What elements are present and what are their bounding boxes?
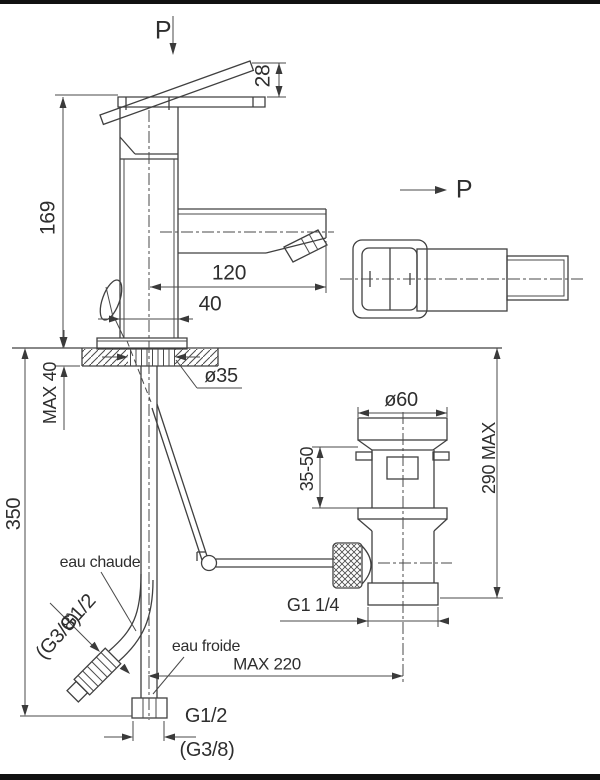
dimension-lines	[20, 63, 503, 741]
thread-cold-g12: G1/2	[185, 706, 227, 726]
label-eau-chaude: eau chaude	[60, 555, 141, 571]
rod-ball-joint	[202, 556, 217, 571]
page-border-top	[0, 0, 600, 4]
side-view-spout	[340, 186, 583, 318]
faucet-top-plate	[118, 97, 265, 107]
dim-dia-60: ø60	[384, 390, 418, 410]
dim-max-40: MAX 40	[41, 362, 59, 424]
view-arrow-side-head	[435, 186, 447, 194]
dim-120: 120	[212, 263, 246, 284]
dim-35-50: 35-50	[298, 447, 316, 492]
thread-drain-g114: G1 1/4	[287, 596, 339, 614]
view-label-p-top: P	[155, 19, 171, 44]
lever-handle	[100, 61, 253, 124]
threaded-shank	[131, 349, 175, 366]
page-border-bottom	[0, 774, 600, 780]
mounting-deck	[12, 348, 502, 366]
thread-cold-g38: (G3/8)	[180, 740, 235, 760]
dim-350: 350	[4, 498, 24, 530]
hot-inlet-fitting	[65, 648, 121, 704]
dim-max-220: MAX 220	[233, 656, 301, 673]
label-eau-froide: eau froide	[172, 639, 240, 655]
popup-waste-assembly	[333, 412, 452, 684]
faucet-technical-drawing: P 28 169 P 120 40 MAX 40 ø35 350 ø60 35-…	[0, 0, 600, 780]
hot-leader	[101, 572, 136, 631]
view-arrow-top-head	[170, 43, 177, 55]
spout	[178, 209, 327, 262]
view-label-p-side: P	[456, 178, 472, 203]
dim-40: 40	[199, 294, 222, 315]
dim-dia-35: ø35	[204, 366, 238, 386]
popup-knob	[96, 277, 126, 338]
dim-290-max: 290 MAX	[480, 422, 498, 494]
dim-169: 169	[38, 201, 59, 235]
hot-water-tube	[109, 574, 153, 661]
dim-28: 28	[253, 65, 274, 88]
